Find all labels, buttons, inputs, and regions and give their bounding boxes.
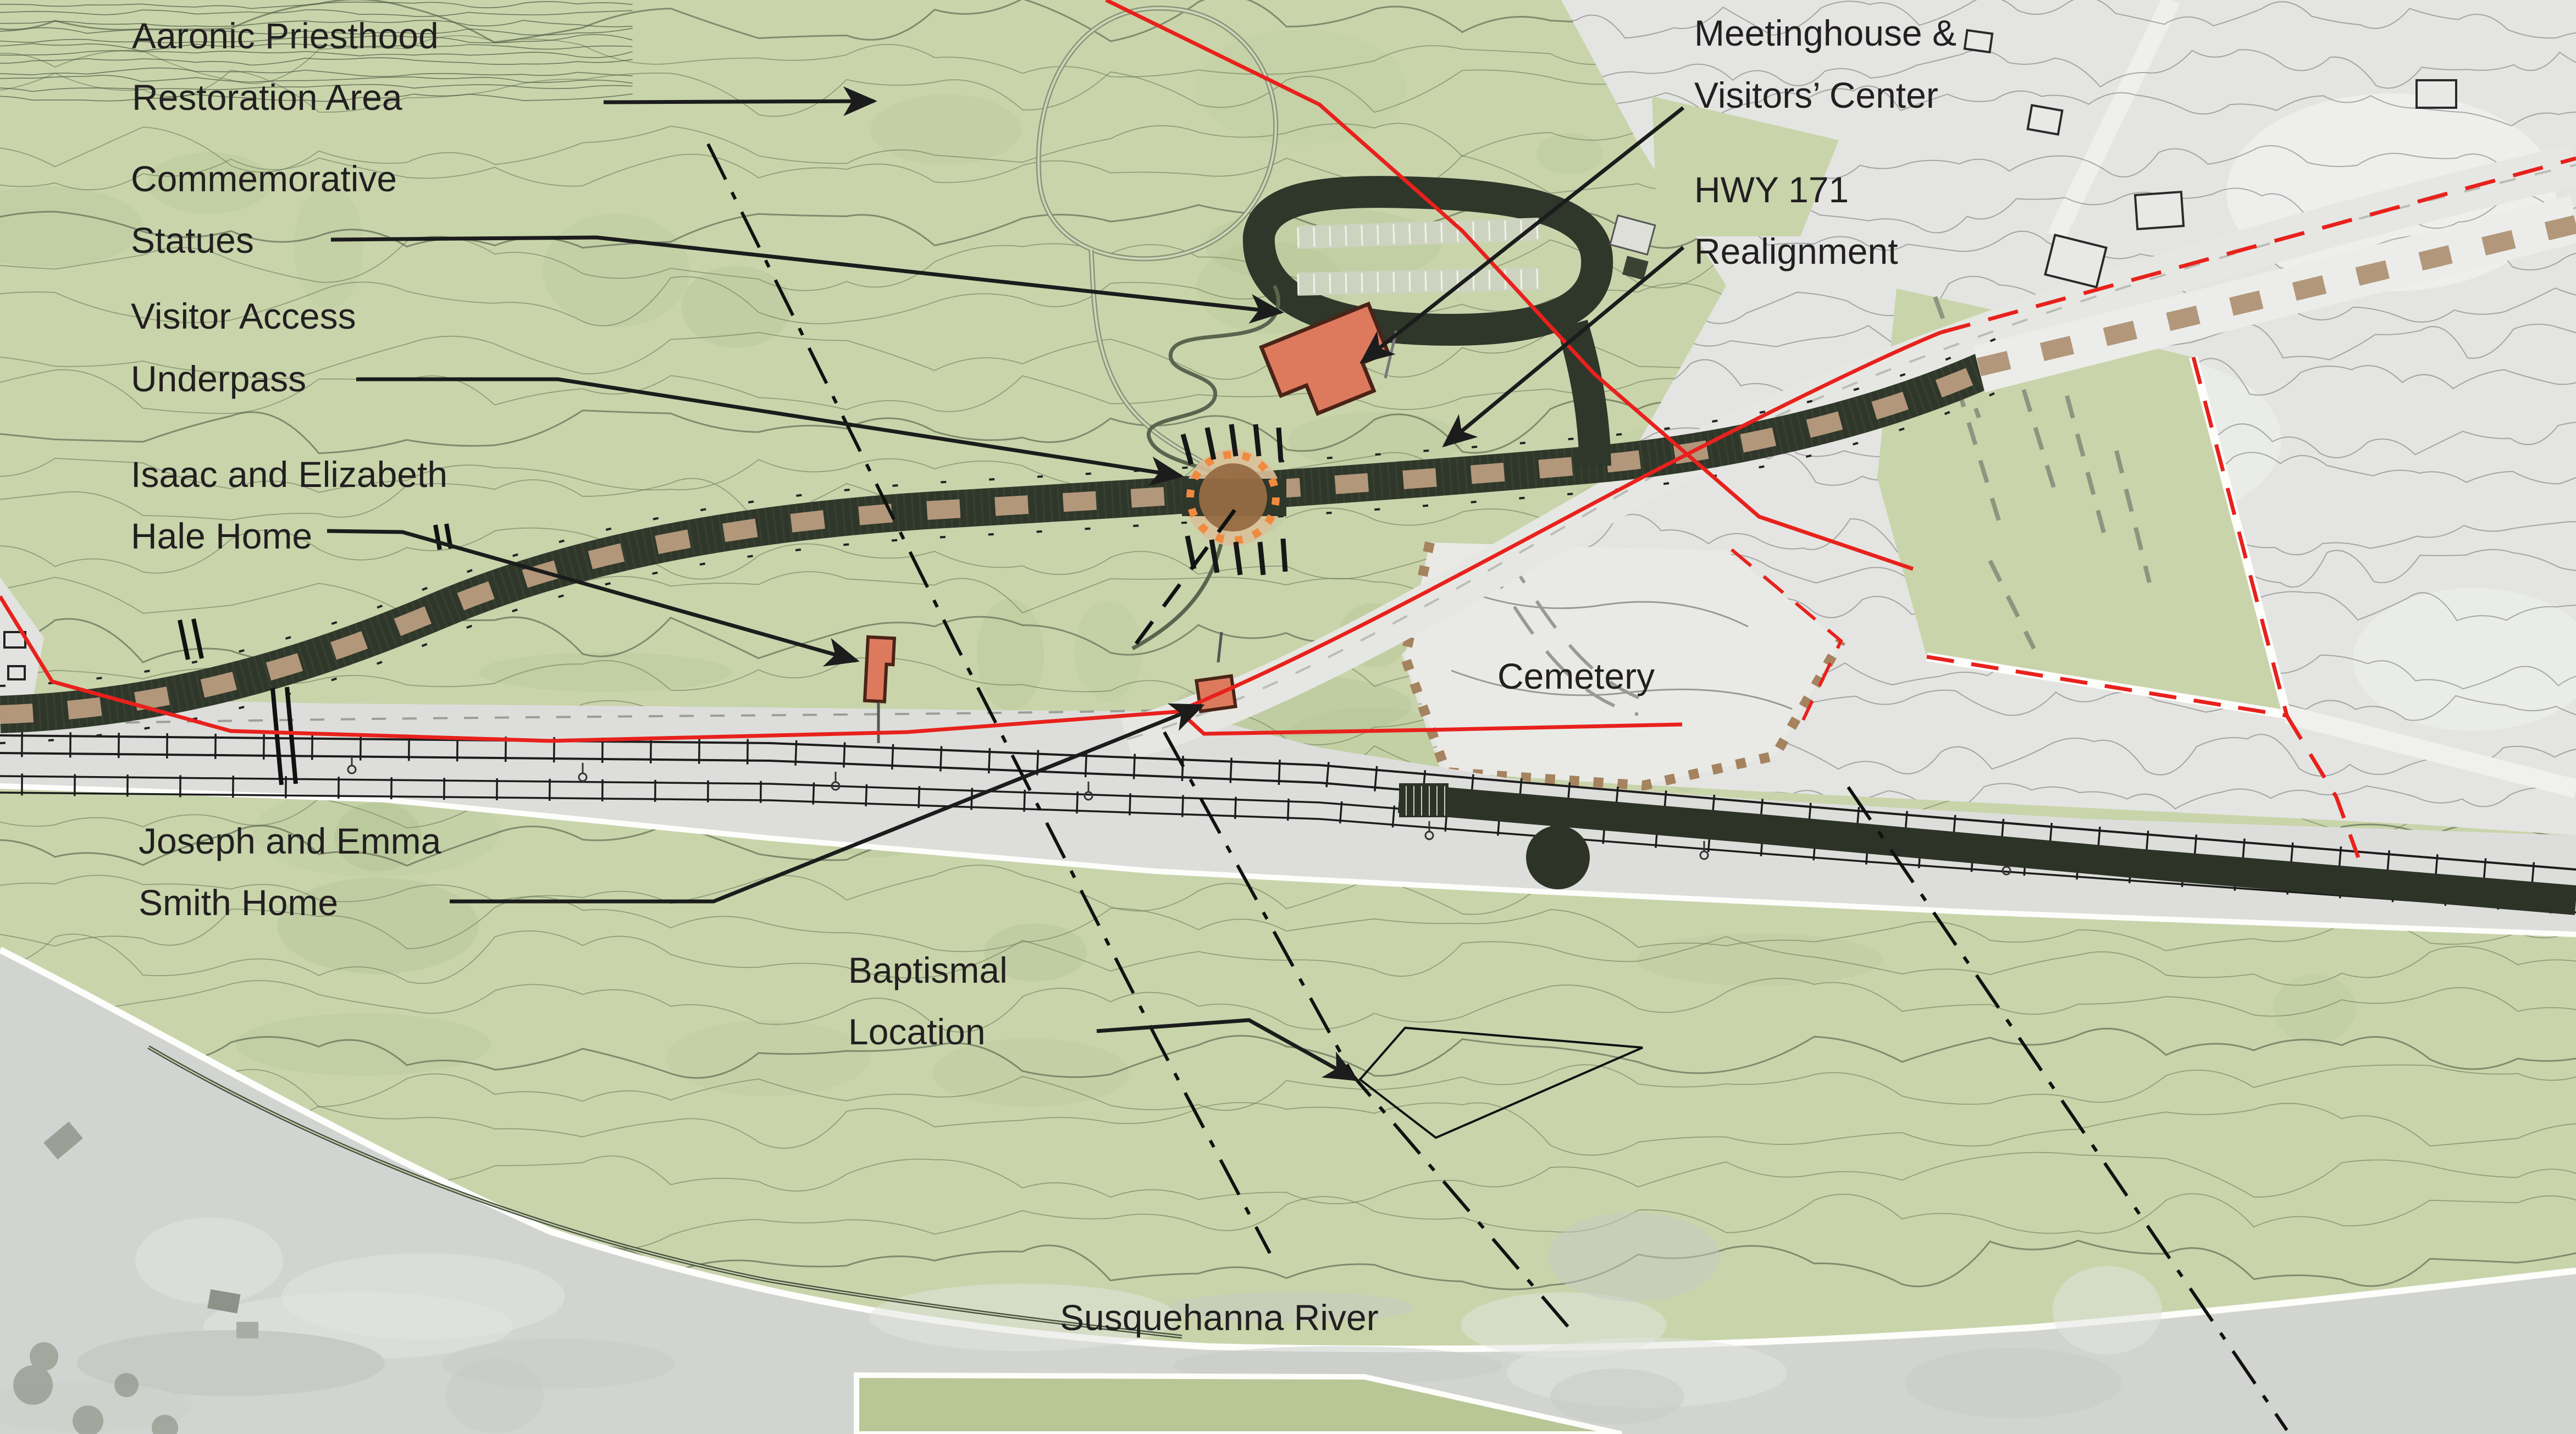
label-joseph-line1: Joseph and Emma [139,821,441,861]
label-visitor-line1: Visitor Access [131,296,356,336]
label-cemetery: Cemetery [1497,656,1655,696]
label-isaac-line2: Hale Home [131,516,312,556]
label-river: Susquehanna River [1060,1297,1379,1338]
label-commemorative-line1: Commemorative [131,158,397,199]
label-baptismal-line2: Location [848,1011,986,1052]
label-meetinghouse-line1: Meetinghouse & [1694,13,1956,53]
label-commemorative-line2: Statues [131,220,254,261]
label-visitor-line2: Underpass [131,358,306,399]
label-baptismal-line1: Baptismal [848,950,1008,990]
leader-aaronic [604,101,874,102]
label-aaronic-line2: Restoration Area [132,77,402,118]
label-isaac-line1: Isaac and Elizabeth [131,454,447,495]
label-aaronic-line1: Aaronic Priesthood [132,15,439,56]
label-hwy-line1: HWY 171 [1694,169,1849,210]
site-plan-map: Aaronic Priesthood Restoration Area Comm… [0,0,2576,1434]
label-joseph-line2: Smith Home [139,882,338,923]
label-hwy-line2: Realignment [1694,231,1898,272]
label-meetinghouse-line2: Visitors’ Center [1694,75,1938,115]
